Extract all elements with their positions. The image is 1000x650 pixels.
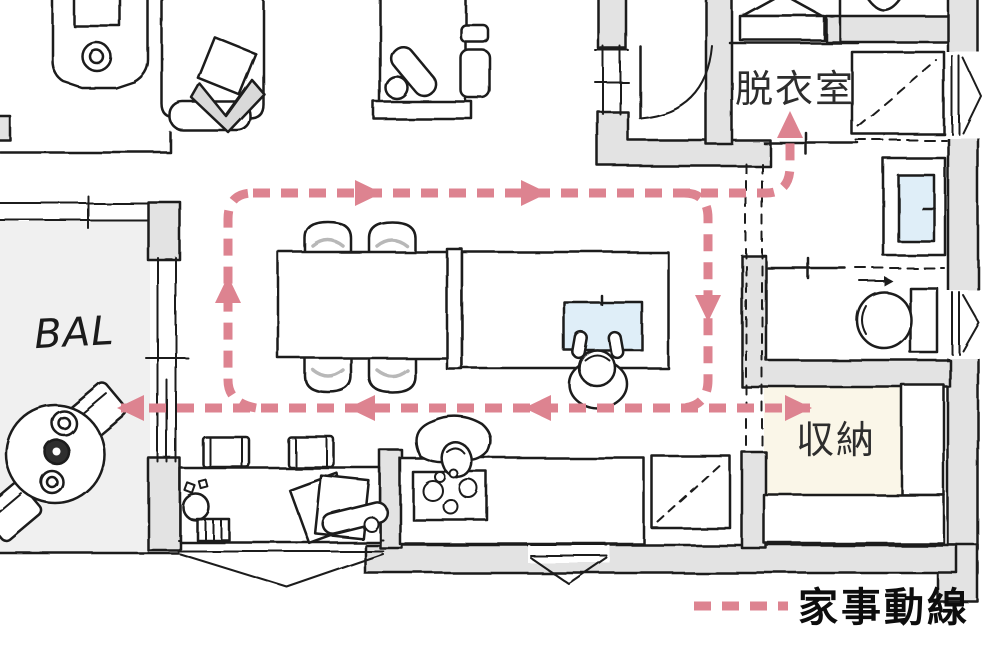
wall-hall-bottom — [598, 112, 770, 166]
label-storage: 収納 — [796, 418, 876, 462]
top-right-basin-arc — [866, 0, 902, 10]
door-swing-arc — [640, 46, 712, 118]
stool — [203, 437, 249, 467]
bedroom-wall-line — [0, 132, 170, 152]
wall-bottom — [365, 545, 957, 573]
window-toilet-right — [944, 290, 980, 358]
bathtub — [852, 52, 944, 134]
window-kitchen-bottom — [528, 541, 610, 584]
plant-pot — [183, 494, 209, 520]
flow-arrow-up — [215, 276, 241, 303]
label-balcony: BAL — [33, 308, 115, 358]
study-counter — [180, 437, 389, 543]
flow-arrow-down — [695, 295, 721, 322]
label-dressing-room: 脱衣室 — [735, 67, 855, 111]
flow-arrow-left — [348, 395, 375, 421]
wall-balcony-bottom-post — [148, 458, 180, 550]
toilet — [857, 288, 937, 352]
wall-top-middle-post — [598, 0, 626, 48]
storage-shelf-right — [902, 385, 944, 495]
island-end-panel — [447, 249, 462, 369]
toilet-door-arrow — [860, 276, 893, 286]
side-chair-small — [461, 25, 488, 42]
hinged-door — [640, 46, 712, 118]
refrigerator-space — [652, 456, 730, 528]
vanity-sink — [883, 158, 945, 255]
flow-arrow-up — [777, 111, 803, 138]
flow-arrow-left — [524, 395, 551, 421]
bay-window-counter — [178, 540, 383, 587]
lounge-chair — [52, 0, 148, 88]
washroom-toilet-opening — [768, 258, 845, 278]
sofa — [162, 0, 264, 132]
washing-machine — [740, 0, 824, 40]
stool — [288, 437, 334, 467]
window-balcony-side — [146, 258, 188, 462]
window-top-middle — [595, 46, 628, 114]
kitchen-counter — [400, 458, 644, 544]
flow-arrow-right — [521, 180, 548, 206]
wall-balcony-top-post — [148, 202, 180, 260]
wall-left-edge-post — [0, 116, 10, 140]
side-chair — [461, 50, 490, 98]
legend-label: 家事動線 — [798, 585, 970, 631]
wall-top-right-band — [826, 16, 952, 42]
kitchen-island — [447, 249, 668, 369]
wall-storage-left-post — [742, 452, 766, 548]
book-stack — [197, 519, 229, 540]
floor-plan-svg: 脱衣室 収納 BAL 家事動線 — [0, 0, 1000, 650]
wall-kitchen-left-post — [380, 450, 402, 548]
floor-plan: 脱衣室 収納 BAL 家事動線 — [0, 0, 1000, 650]
window-bath-right — [944, 52, 981, 138]
dining-table — [278, 252, 448, 358]
storage-shelf-bottom — [764, 495, 944, 543]
desk — [374, 0, 490, 119]
wall-hall-right — [706, 0, 732, 144]
flow-arrow-right — [355, 180, 382, 206]
